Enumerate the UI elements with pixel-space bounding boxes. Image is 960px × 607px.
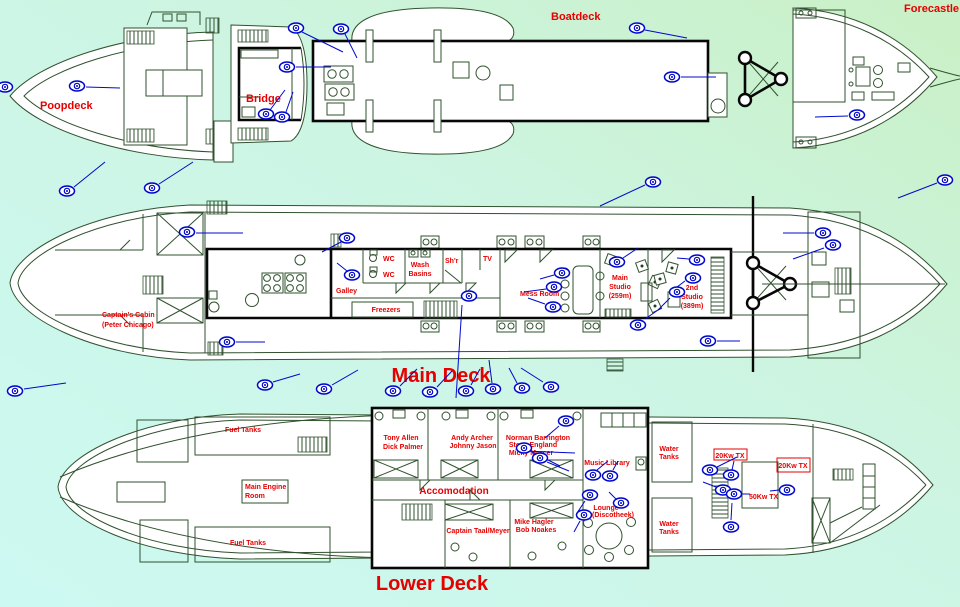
camera-viewpoint-icon[interactable] [340,233,355,243]
cabin-label: Johnny Jason [449,443,496,450]
lounge-label: (Discotheek) [592,512,634,519]
camera-viewpoint-icon[interactable] [583,490,598,500]
camera-viewpoint-icon[interactable] [546,302,561,312]
main-studio-label: (259m) [609,293,632,300]
camera-viewpoint-icon[interactable] [577,510,592,520]
galley-label: Galley [336,288,357,295]
camera-viewpoint-icon[interactable] [345,270,360,280]
camera-viewpoint-icon[interactable] [70,81,85,91]
cabin-label: Dick Palmer [383,444,423,451]
camera-viewpoint-icon[interactable] [665,72,680,82]
wash-basins-label: Basins [409,271,432,278]
second-studio-label: (389m) [681,303,704,310]
stairs [143,276,163,294]
camera-viewpoint-icon[interactable] [459,386,474,396]
camera-viewpoint-icon[interactable] [724,522,739,532]
camera-viewpoint-icon[interactable] [603,471,618,481]
camera-viewpoint-icon[interactable] [555,268,570,278]
camera-viewpoint-icon[interactable] [486,384,501,394]
camera-viewpoint-icon[interactable] [334,24,349,34]
cabin-label: Tony Allen [384,435,419,442]
camera-viewpoint-icon[interactable] [275,112,290,122]
cabin-label: Andy Archer [451,435,493,442]
captains-cabin-label: Captain's Cabin [102,312,155,319]
camera-viewpoint-icon[interactable] [614,498,629,508]
tv-label: TV [483,256,492,263]
camera-viewpoint-icon[interactable] [938,175,953,185]
camera-viewpoint-icon[interactable] [0,82,13,92]
forecastle-label: Forecastle [904,3,959,15]
davit [434,100,441,132]
winch-hatch [127,31,154,44]
camera-viewpoint-icon[interactable] [586,470,601,480]
camera-viewpoint-icon[interactable] [703,465,718,475]
music-library-label: Music Library [584,460,630,467]
camera-viewpoint-icon[interactable] [60,186,75,196]
boatdeck-label: Boatdeck [551,11,601,23]
stairs [402,504,432,520]
cabin-label: Bob Noakes [516,527,557,534]
camera-viewpoint-icon[interactable] [610,257,625,267]
tx-label: 20Kw TX [778,463,808,470]
main-engine-room-label: Main Engine [245,484,286,491]
captains-cabin-label: (Peter Chicago) [102,322,154,329]
wash-basins-label: Wash [411,262,429,269]
water-tanks-label: Water [659,521,678,528]
camera-viewpoint-icon[interactable] [630,23,645,33]
camera-viewpoint-icon[interactable] [559,416,574,426]
water-tanks-label: Tanks [659,454,679,461]
winch-hatch [127,129,154,142]
camera-viewpoint-icon[interactable] [544,382,559,392]
camera-viewpoint-icon[interactable] [670,287,685,297]
camera-viewpoint-icon[interactable] [816,228,831,238]
cabin-label: Norman Barrington [506,435,570,442]
ship-deck-plans-diagram: Poopdeck Bridge Boatdeck [0,0,960,607]
camera-viewpoint-icon[interactable] [515,383,530,393]
main-engine-room-label: Room [245,493,265,500]
camera-viewpoint-icon[interactable] [850,110,865,120]
camera-viewpoint-icon[interactable] [317,384,332,394]
main-studio-label: Main [612,275,628,282]
camera-viewpoint-icon[interactable] [386,386,401,396]
camera-viewpoint-icon[interactable] [145,183,160,193]
wc-label: WC [383,256,395,263]
camera-viewpoint-icon[interactable] [220,337,235,347]
second-studio-label: Studio [681,294,703,301]
camera-viewpoint-icon[interactable] [533,453,548,463]
accomodation-label: Accomodation [419,486,488,497]
camera-viewpoint-icon[interactable] [462,291,477,301]
tx-label: 50Kw TX [749,494,779,501]
companionway-ladder [607,359,623,371]
camera-viewpoint-icon[interactable] [826,240,841,250]
wc-label: WC [383,272,395,279]
camera-viewpoint-icon[interactable] [780,485,795,495]
water-tanks-label: Tanks [659,529,679,536]
camera-viewpoint-icon[interactable] [259,109,274,119]
main-studio-label: Studio [609,284,631,291]
freezers-label: Freezers [372,307,401,314]
fuel-tanks-label: Fuel Tanks [230,540,266,547]
camera-viewpoint-icon[interactable] [646,177,661,187]
camera-viewpoint-icon[interactable] [701,336,716,346]
davit [366,30,373,62]
stairs [424,301,457,318]
bridge-plan: Bridge [231,25,307,143]
camera-viewpoint-icon[interactable] [631,320,646,330]
camera-viewpoint-icon[interactable] [423,387,438,397]
poopdeck-label: Poopdeck [40,100,93,112]
shower-label: Sh'r [445,258,459,265]
camera-viewpoint-icon[interactable] [724,470,739,480]
camera-viewpoint-icon[interactable] [547,282,562,292]
camera-viewpoint-icon[interactable] [727,489,742,499]
lower-deck-title: Lower Deck [376,573,489,595]
water-tanks-label: Water [659,446,678,453]
camera-viewpoint-icon[interactable] [517,443,532,453]
davit [366,100,373,132]
cabin-label: Captain Taal/Meyer [446,528,510,535]
cabin-label: Mike Hagler [514,519,554,526]
camera-viewpoint-icon[interactable] [8,386,23,396]
camera-viewpoint-icon[interactable] [280,62,295,72]
camera-viewpoint-icon[interactable] [180,227,195,237]
davit [434,30,441,62]
camera-viewpoint-icon[interactable] [289,23,304,33]
camera-viewpoint-icon[interactable] [690,255,705,265]
tx-label: 20Kw TX [715,453,745,460]
fuel-tanks-label: Fuel Tanks [225,427,261,434]
second-studio-label: 2nd [686,285,698,292]
camera-viewpoint-icon[interactable] [258,380,273,390]
camera-viewpoint-icon[interactable] [686,273,701,283]
